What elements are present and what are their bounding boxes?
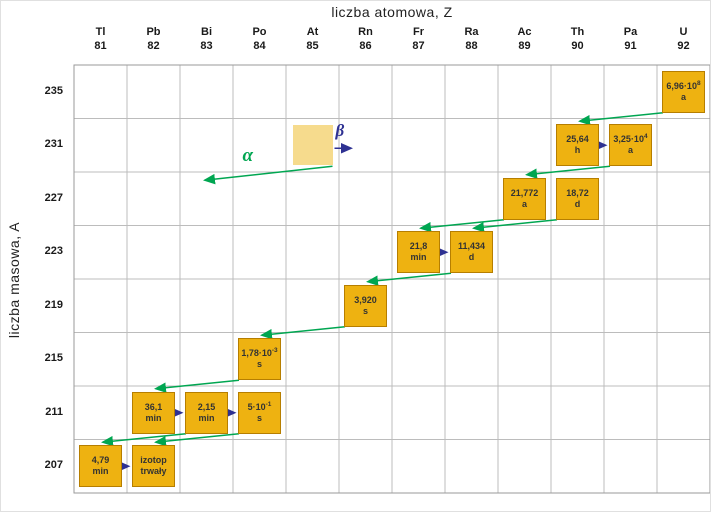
nuclide-box-Ra-223: 11,434d bbox=[450, 231, 493, 273]
nuclide-box-Tl-207: 4,79min bbox=[79, 445, 122, 487]
x-label-z-91: 91 bbox=[604, 40, 657, 52]
half-life-unit: min bbox=[145, 413, 161, 424]
y-label-223: 223 bbox=[23, 245, 63, 257]
alpha-decay-arrow-Pa231 bbox=[527, 166, 611, 175]
nuclide-box-Po-215: 1,78·10-3s bbox=[238, 338, 281, 380]
decay-series-chart: liczba atomowa, Z liczba masowa, A Tl81P… bbox=[0, 0, 711, 512]
half-life-value: 21,772 bbox=[511, 188, 539, 199]
x-label-symbol-Ra: Ra bbox=[445, 26, 498, 38]
y-label-215: 215 bbox=[23, 352, 63, 364]
nuclide-box-Pb-211: 36,1min bbox=[132, 392, 175, 434]
nuclide-box-Fr-223: 21,8min bbox=[397, 231, 440, 273]
half-life-unit: d bbox=[469, 252, 475, 263]
x-label-symbol-Fr: Fr bbox=[392, 26, 445, 38]
half-life-unit: min bbox=[92, 466, 108, 477]
half-life-value: 6,96·108 bbox=[666, 81, 700, 92]
half-life-value: 3,920 bbox=[354, 295, 377, 306]
x-label-symbol-At: At bbox=[286, 26, 339, 38]
nuclide-box-U-235: 6,96·108a bbox=[662, 71, 705, 113]
half-life-value: 2,15 bbox=[198, 402, 216, 413]
y-label-219: 219 bbox=[23, 299, 63, 311]
nuclide-box-Th-227: 18,72d bbox=[556, 178, 599, 220]
half-life-value: 18,72 bbox=[566, 188, 589, 199]
y-label-231: 231 bbox=[23, 138, 63, 150]
y-axis-title: liczba masowa, A bbox=[6, 205, 22, 355]
alpha-decay-arrow-Rn219 bbox=[262, 327, 346, 336]
half-life-unit: min bbox=[198, 413, 214, 424]
x-label-z-86: 86 bbox=[339, 40, 392, 52]
half-life-value: 3,25·104 bbox=[613, 134, 647, 145]
legend-beta-label: β bbox=[336, 121, 345, 141]
x-label-z-83: 83 bbox=[180, 40, 233, 52]
half-life-unit: h bbox=[575, 145, 581, 156]
x-label-z-85: 85 bbox=[286, 40, 339, 52]
nuclide-box-Ac-227: 21,772a bbox=[503, 178, 546, 220]
half-life-unit: a bbox=[681, 92, 686, 103]
half-life-unit: s bbox=[257, 359, 262, 370]
x-label-z-84: 84 bbox=[233, 40, 286, 52]
x-label-symbol-Po: Po bbox=[233, 26, 286, 38]
x-label-z-81: 81 bbox=[74, 40, 127, 52]
half-life-value: 21,8 bbox=[410, 241, 428, 252]
x-label-z-88: 88 bbox=[445, 40, 498, 52]
legend-alpha-arrow bbox=[205, 166, 333, 180]
half-life-value: 4,79 bbox=[92, 455, 110, 466]
nuclide-box-Po-211: 5·10-1s bbox=[238, 392, 281, 434]
half-life-unit: trwały bbox=[140, 466, 166, 477]
half-life-value: 36,1 bbox=[145, 402, 163, 413]
half-life-value: izotop bbox=[140, 455, 167, 466]
alpha-decay-arrow-U235 bbox=[580, 113, 664, 122]
legend-swatch-box bbox=[293, 125, 333, 165]
legend-alpha-label: α bbox=[243, 145, 254, 167]
nuclide-box-Bi-211: 2,15min bbox=[185, 392, 228, 434]
half-life-value: 1,78·10-3 bbox=[241, 348, 277, 359]
y-label-207: 207 bbox=[23, 459, 63, 471]
y-label-235: 235 bbox=[23, 85, 63, 97]
x-label-symbol-Ac: Ac bbox=[498, 26, 551, 38]
chart-canvas bbox=[1, 1, 711, 512]
half-life-unit: min bbox=[410, 252, 426, 263]
x-axis-title: liczba atomowa, Z bbox=[74, 4, 710, 20]
nuclide-box-Pa-231: 3,25·104a bbox=[609, 124, 652, 166]
x-label-z-82: 82 bbox=[127, 40, 180, 52]
half-life-unit: s bbox=[363, 306, 368, 317]
y-label-227: 227 bbox=[23, 192, 63, 204]
x-label-z-87: 87 bbox=[392, 40, 445, 52]
half-life-unit: a bbox=[522, 199, 527, 210]
nuclide-box-Rn-219: 3,920s bbox=[344, 285, 387, 327]
nuclide-box-Th-231: 25,64h bbox=[556, 124, 599, 166]
y-label-211: 211 bbox=[23, 406, 63, 418]
half-life-unit: d bbox=[575, 199, 581, 210]
x-label-symbol-Rn: Rn bbox=[339, 26, 392, 38]
half-life-value: 11,434 bbox=[458, 241, 485, 252]
x-label-symbol-Pb: Pb bbox=[127, 26, 180, 38]
x-label-z-89: 89 bbox=[498, 40, 551, 52]
x-label-symbol-Th: Th bbox=[551, 26, 604, 38]
alpha-decay-arrow-Po215 bbox=[156, 380, 240, 389]
half-life-unit: s bbox=[257, 413, 262, 424]
x-label-z-90: 90 bbox=[551, 40, 604, 52]
x-label-symbol-U: U bbox=[657, 26, 710, 38]
nuclide-box-Pb-207: izotoptrwały bbox=[132, 445, 175, 487]
x-label-symbol-Bi: Bi bbox=[180, 26, 233, 38]
half-life-value: 25,64 bbox=[566, 134, 589, 145]
x-label-symbol-Pa: Pa bbox=[604, 26, 657, 38]
alpha-decay-arrow-Ra223 bbox=[368, 273, 452, 282]
half-life-value: 5·10-1 bbox=[248, 402, 272, 413]
x-label-z-92: 92 bbox=[657, 40, 710, 52]
x-label-symbol-Tl: Tl bbox=[74, 26, 127, 38]
half-life-unit: a bbox=[628, 145, 633, 156]
